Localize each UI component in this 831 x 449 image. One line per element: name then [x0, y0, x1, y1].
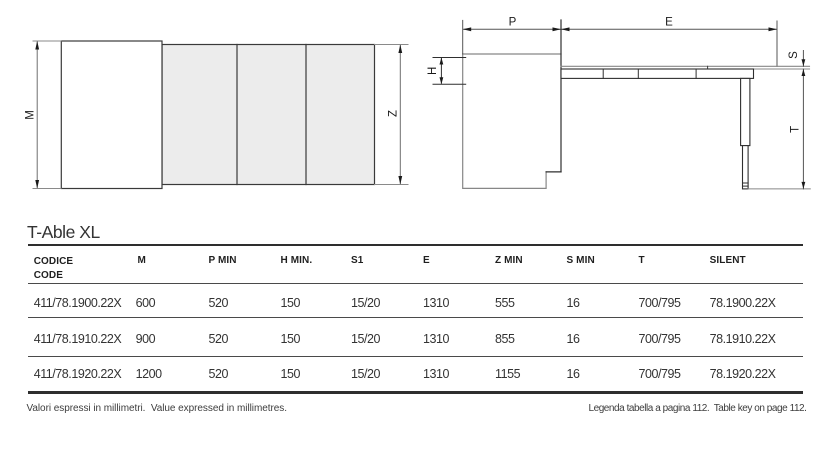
svg-text:E: E	[665, 17, 673, 29]
svg-text:S: S	[788, 51, 800, 59]
svg-text:H: H	[427, 67, 439, 75]
svg-text:M: M	[25, 110, 37, 120]
svg-text:T: T	[790, 126, 802, 133]
svg-text:P: P	[509, 17, 517, 29]
svg-text:Z: Z	[388, 110, 400, 117]
